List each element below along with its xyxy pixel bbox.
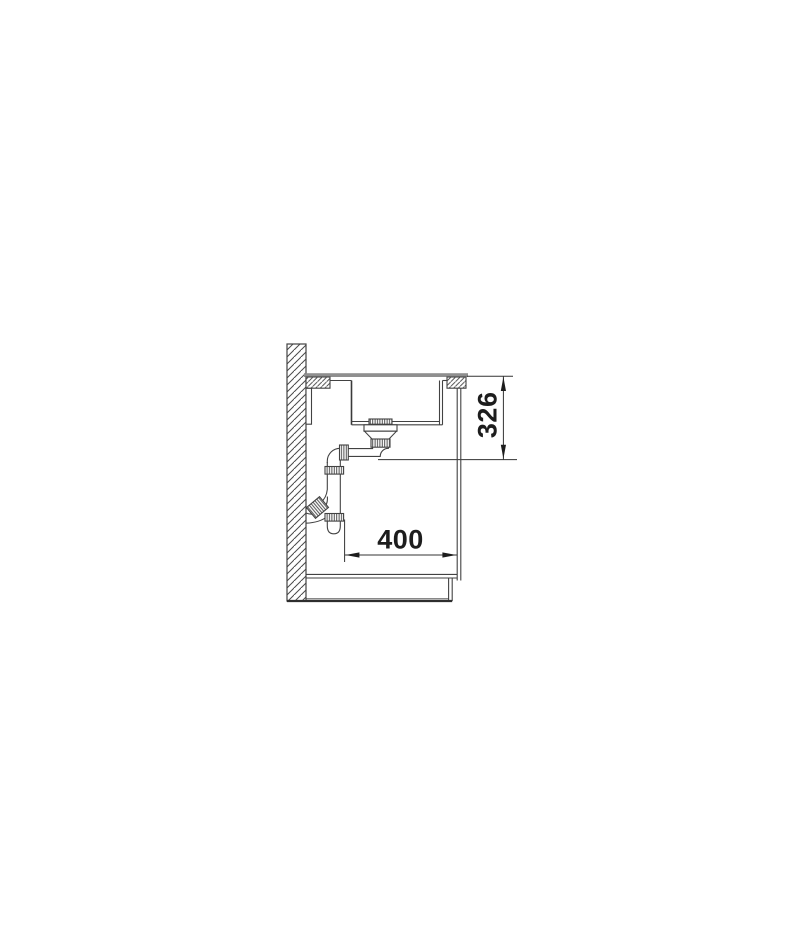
strainer-flange bbox=[364, 425, 397, 431]
dim-horizontal-arrow-right bbox=[442, 552, 456, 557]
worktop-surface bbox=[304, 373, 468, 377]
pipe-coupling-nut bbox=[340, 445, 349, 460]
dim-vertical-arrow-top bbox=[501, 377, 506, 391]
strainer-basket-band bbox=[369, 419, 392, 424]
product-drawing-canvas: 326 400 bbox=[0, 0, 800, 950]
worktop-right-section bbox=[447, 377, 466, 388]
strainer-nut bbox=[371, 439, 390, 447]
worktop-left-section bbox=[306, 377, 330, 388]
wall-hatch bbox=[287, 344, 306, 601]
dim-vertical-arrow-bottom bbox=[501, 445, 506, 459]
dimension-vertical-326: 326 bbox=[467, 376, 513, 459]
wall-batten bbox=[306, 388, 312, 424]
siphon-trap bbox=[306, 445, 348, 534]
waste-pipe bbox=[348, 447, 388, 456]
trap-collar-lower bbox=[325, 514, 344, 522]
wall-section bbox=[287, 344, 306, 601]
trap-collar-upper bbox=[325, 467, 344, 475]
dimension-horizontal-400: 400 bbox=[345, 520, 458, 563]
sink-bowl bbox=[330, 381, 447, 425]
dim-horizontal-arrow-left bbox=[345, 552, 359, 557]
trap-elbow-outer bbox=[327, 448, 340, 463]
sink-section-diagram: 326 400 bbox=[0, 0, 800, 950]
dim-vertical-label: 326 bbox=[473, 392, 503, 439]
trap-bottom-cap bbox=[327, 526, 340, 534]
strainer-body bbox=[365, 431, 397, 439]
dim-horizontal-label: 400 bbox=[377, 525, 424, 555]
waste-pipe-top-edge bbox=[348, 447, 373, 448]
drain-strainer bbox=[364, 419, 397, 447]
